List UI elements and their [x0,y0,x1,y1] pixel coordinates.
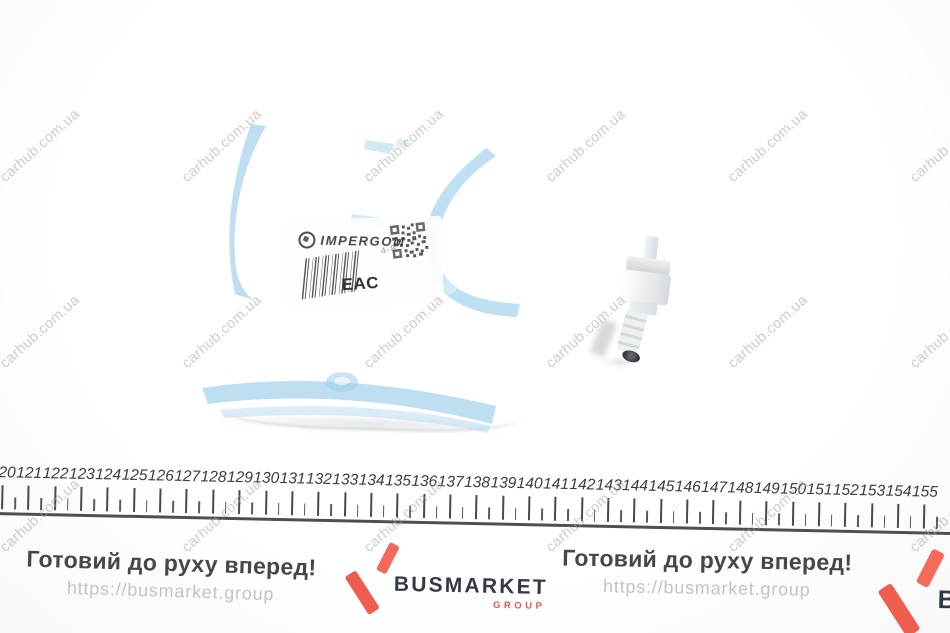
ruler-tick-minor [436,506,438,518]
ruler-number: 144 [621,477,649,496]
watermark-text: carhub.com.ua [907,106,950,186]
ruler-number: 142 [568,476,596,495]
ruler-number: 131 [278,470,306,489]
ruler-number: 124 [94,466,122,485]
ruler-tick-minor [831,515,833,527]
ruler-tick-major [159,488,162,512]
ruler-tick-minor [804,514,806,526]
ruler-tick-major [291,491,294,515]
watermark-text: carhub.com.ua [725,106,811,186]
ruler-tick-major [1,485,4,509]
ruler-tick-minor [225,502,227,514]
impergom-emblem-icon [298,231,315,248]
ruler-tick-minor [541,508,543,520]
ruler-tick-major [475,495,478,519]
watermark-text: carhub.com.ua [0,106,83,186]
ruler-tick-major [739,501,742,525]
ruler-tick-minor [488,507,490,519]
ruler-number: 132 [305,471,333,490]
ruler-unit: 155 [923,483,950,529]
ruler-number: 146 [674,478,702,497]
ruler-number: 138 [463,474,491,493]
ruler-tick-major [870,503,873,527]
ruler-tick-major [264,491,267,515]
ruler-tick-major [923,504,926,528]
product-photo: IMPERGOM EAC 4-8 [0,0,950,633]
ruler: 1201211221231241251261271281291301311321… [0,464,950,536]
ruler-number: 122 [41,465,69,484]
watermark-text: carhub.com.ua [725,292,811,372]
logo-bar-top [916,548,945,588]
ruler-tick-minor [330,504,332,516]
ruler-tick-major [54,486,57,510]
ruler-tick-major [633,498,636,522]
ruler-tick-minor [699,512,701,524]
ruler-tick-minor [93,499,95,511]
ruler-tick-minor [515,508,517,520]
ruler-tick-minor [778,513,780,525]
ruler-tick-major [765,501,768,525]
ruler-tick-minor [40,498,42,510]
valve-body-group [600,229,688,373]
ruler-tick-major [791,502,794,526]
ruler-tick-major [686,500,689,524]
ruler-tick-minor [357,505,359,517]
bag-emblem-bottom-inner [334,377,350,385]
ruler-tick-major [317,492,320,516]
ruler-number: 127 [173,468,201,487]
ruler-tick-minor [936,517,938,529]
ruler-tick-major [897,504,900,528]
ruler-number: 137 [436,473,464,492]
ruler-tick-minor [620,510,622,522]
slogan-text: Готовий до руху вперед! [562,544,853,576]
ruler-number: 129 [226,469,254,488]
ruler-tick-minor [198,501,200,513]
ruler-number: 140 [516,475,544,494]
ruler-tick-major [106,487,109,511]
ruler-number: 136 [410,473,438,492]
ruler-tick-major [818,502,821,526]
ruler-number: 128 [199,468,227,487]
valve-part [608,233,680,369]
ruler-number: 130 [252,469,280,488]
ruler-tick-major [396,493,399,517]
ruler-number: 145 [647,478,675,497]
busmarket-wordmark: BUSMARKET GROUP [393,573,548,612]
ruler-tick-minor [277,503,279,515]
logo-bar-bottom [345,570,380,615]
ruler-tick-major [185,489,188,513]
ruler-number: 149 [753,480,781,499]
watermark-text: carhub.com.ua [907,292,950,372]
ruler-number: 148 [726,479,754,498]
ruler-tick-major [370,493,373,517]
ruler-number: 150 [779,480,807,499]
ruler-tick-major [712,500,715,524]
product-label: IMPERGOM EAC 4-8 [284,216,444,308]
ruler-number: 125 [120,467,148,486]
ruler-tick-minor [14,497,16,509]
ruler-tick-major [554,497,557,521]
busmarket-logo-partial: BUSMARKET GROUP [888,546,950,633]
valve-tube [616,309,648,355]
slogan-block-left: Готовий до руху вперед! https://busmarke… [25,545,317,606]
ruler-tick-minor [119,500,121,512]
ruler-number: 152 [832,482,860,501]
ruler-number: 126 [147,467,175,486]
ruler-number: 151 [805,481,833,500]
qr-code [389,221,431,261]
ruler-tick-major [607,498,610,522]
bag-mark-top-2 [395,138,409,149]
ruler-tick-minor [725,512,727,524]
busmarket-logo-icon [353,540,407,615]
busmarket-name: BUSMARKET [394,573,548,600]
ruler-tick-minor [646,511,648,523]
ruler-tick-major [581,497,584,521]
ruler-tick-minor [752,513,754,525]
slogan-text: Готовий до руху вперед! [26,545,317,581]
ruler-tick-minor [146,500,148,512]
ruler-tick-minor [251,502,253,514]
ruler-number: 155 [911,483,939,502]
slogan-block-right: Готовий до руху вперед! https://busmarke… [562,544,853,601]
ruler-tick-minor [910,516,912,528]
footer-banner: Готовий до руху вперед! https://busmarke… [0,538,950,633]
ruler-tick-minor [304,504,306,516]
ruler-tick-minor [172,501,174,513]
ruler-tick-minor [67,499,69,511]
ruler-tick-minor [462,507,464,519]
ruler-tick-minor [594,510,596,522]
ruler-number: 121 [15,464,43,483]
bag-mark-top [364,140,394,154]
ruler-number: 123 [68,466,96,485]
ruler-tick-major [844,503,847,527]
ruler-number: 141 [542,475,570,494]
bag-strip-highlight [444,232,460,295]
bag-swoosh-left [229,124,266,300]
watermark-text: carhub.com.ua [543,106,629,186]
ruler-tick-major [502,496,505,520]
ruler-tick-major [423,494,426,518]
ruler-tick-minor [883,516,885,528]
ruler-tick-major [449,495,452,519]
ruler-tick-minor [673,511,675,523]
ruler-tick-minor [383,505,385,517]
valve-body [620,269,671,306]
ruler-number: 134 [357,472,385,491]
ruler-tick-minor [409,506,411,518]
ruler-tick-major [80,487,83,511]
ruler-tick-major [212,490,215,514]
ruler-tick-major [660,499,663,523]
logo-bar-bottom [877,583,920,633]
ruler-tick-major [528,496,531,520]
ruler-number: 139 [489,474,517,493]
site-url: https://busmarket.group [25,576,316,606]
busmarket-logo: BUSMARKET GROUP [353,540,548,618]
ruler-number: 154 [884,483,912,502]
busmarket-group-label: GROUP [393,598,545,612]
eac-mark: EAC [341,273,380,295]
ruler-tick-major [133,488,136,512]
logo-bar-top [376,542,400,575]
ruler-number: 135 [384,472,412,491]
ruler-number: 143 [595,477,623,496]
ruler-tick-major [344,492,347,516]
ruler-number: 147 [700,479,728,498]
ruler-tick-minor [567,509,569,521]
ruler-number: 133 [331,471,359,490]
site-url: https://busmarket.group [562,575,852,601]
busmarket-logo-icon [888,546,950,633]
ruler-number: 153 [858,482,886,501]
ruler-tick-minor [857,515,859,527]
ruler-tick-major [238,490,241,514]
watermark-text: carhub.com.ua [0,292,83,372]
ruler-tick-major [27,486,30,510]
